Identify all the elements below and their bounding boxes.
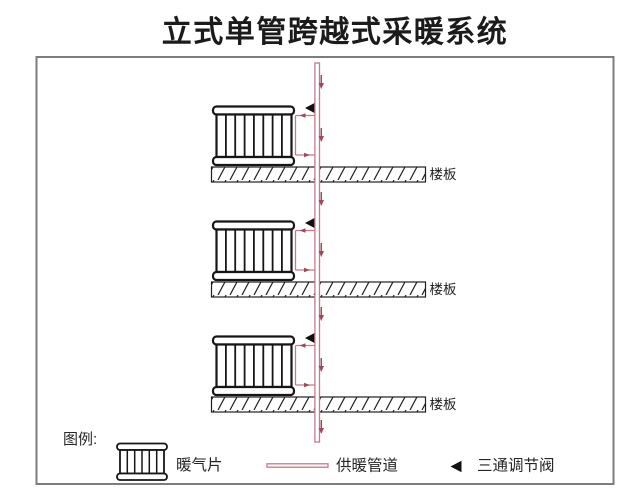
diagram-border [37,57,614,484]
radiator-top-header [213,107,294,115]
legend-pipe-label: 供暖管道 [336,457,398,475]
radiator-top-header [213,222,294,230]
radiator [213,107,294,166]
heating-riser-pipe [315,63,320,442]
page-title: 立式单管跨越式采暖系统 [162,15,509,49]
radiator-top-header [213,337,294,345]
flow-arrow-left-icon [300,343,306,347]
flow-arrow-left-icon [300,113,306,117]
radiator-bottom-header [213,387,294,395]
three-way-valve-icon [305,103,315,114]
floor-2: 楼板 [212,218,457,297]
heating-system-diagram: 立式单管跨越式采暖系统 楼板 [0,0,643,500]
radiator-bottom-header [213,157,294,165]
radiator-branch-pipes [296,228,316,272]
floor-slab-label: 楼板 [430,167,457,182]
radiator [213,337,294,396]
radiator-branch-pipes [296,113,316,157]
legend-radiator-label: 暖气片 [176,456,223,474]
legend-heading: 图例: [63,431,97,448]
radiator-bottom-header [213,272,294,280]
three-way-valve-icon [305,333,315,344]
radiator [213,222,294,281]
legend-valve-label: 三通调节阀 [477,457,555,475]
legend-pipe-symbol [267,464,328,467]
flow-arrow-left-icon [300,228,306,232]
legend: 图例: 暖气片 供暖管道 三通调节阀 [63,431,555,480]
flow-arrow-right-icon [304,383,310,387]
flow-arrow-right-icon [304,268,310,272]
floor-slab-label: 楼板 [430,282,457,297]
legend-radiator-symbol [117,444,167,481]
floor-3: 楼板 [212,333,457,412]
floor-slab-label: 楼板 [430,397,457,412]
flow-arrow-right-icon [304,153,310,157]
heating-system-diagram-page: 立式单管跨越式采暖系统 楼板 [0,0,643,500]
legend-radiator-bottom-header [117,474,167,481]
floor-1: 楼板 [212,103,457,182]
legend-radiator-top-header [117,444,167,451]
legend-valve-icon [451,461,462,473]
three-way-valve-icon [305,218,315,229]
radiator-branch-pipes [296,343,316,387]
